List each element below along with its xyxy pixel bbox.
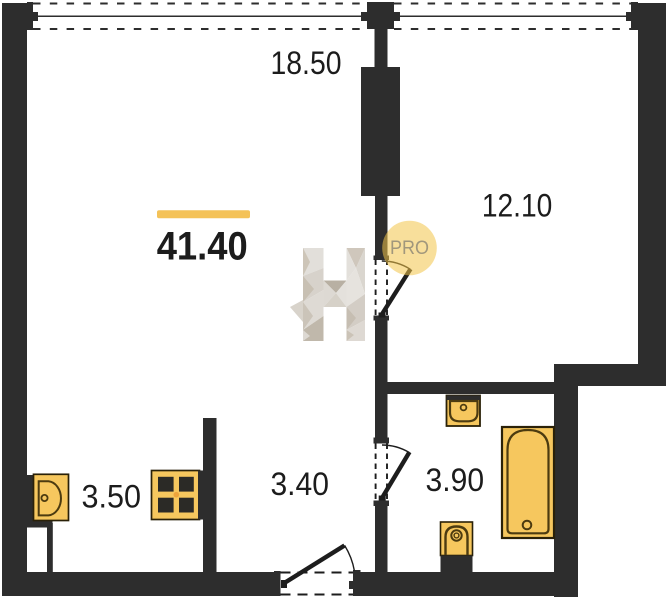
svg-text:3.50: 3.50 — [82, 478, 142, 514]
svg-text:3.90: 3.90 — [426, 462, 485, 498]
svg-text:3.40: 3.40 — [270, 466, 329, 502]
svg-text:18.50: 18.50 — [271, 45, 342, 81]
svg-text:41.40: 41.40 — [157, 225, 248, 269]
svg-text:12.10: 12.10 — [482, 188, 553, 224]
svg-text:PRO: PRO — [390, 237, 429, 259]
